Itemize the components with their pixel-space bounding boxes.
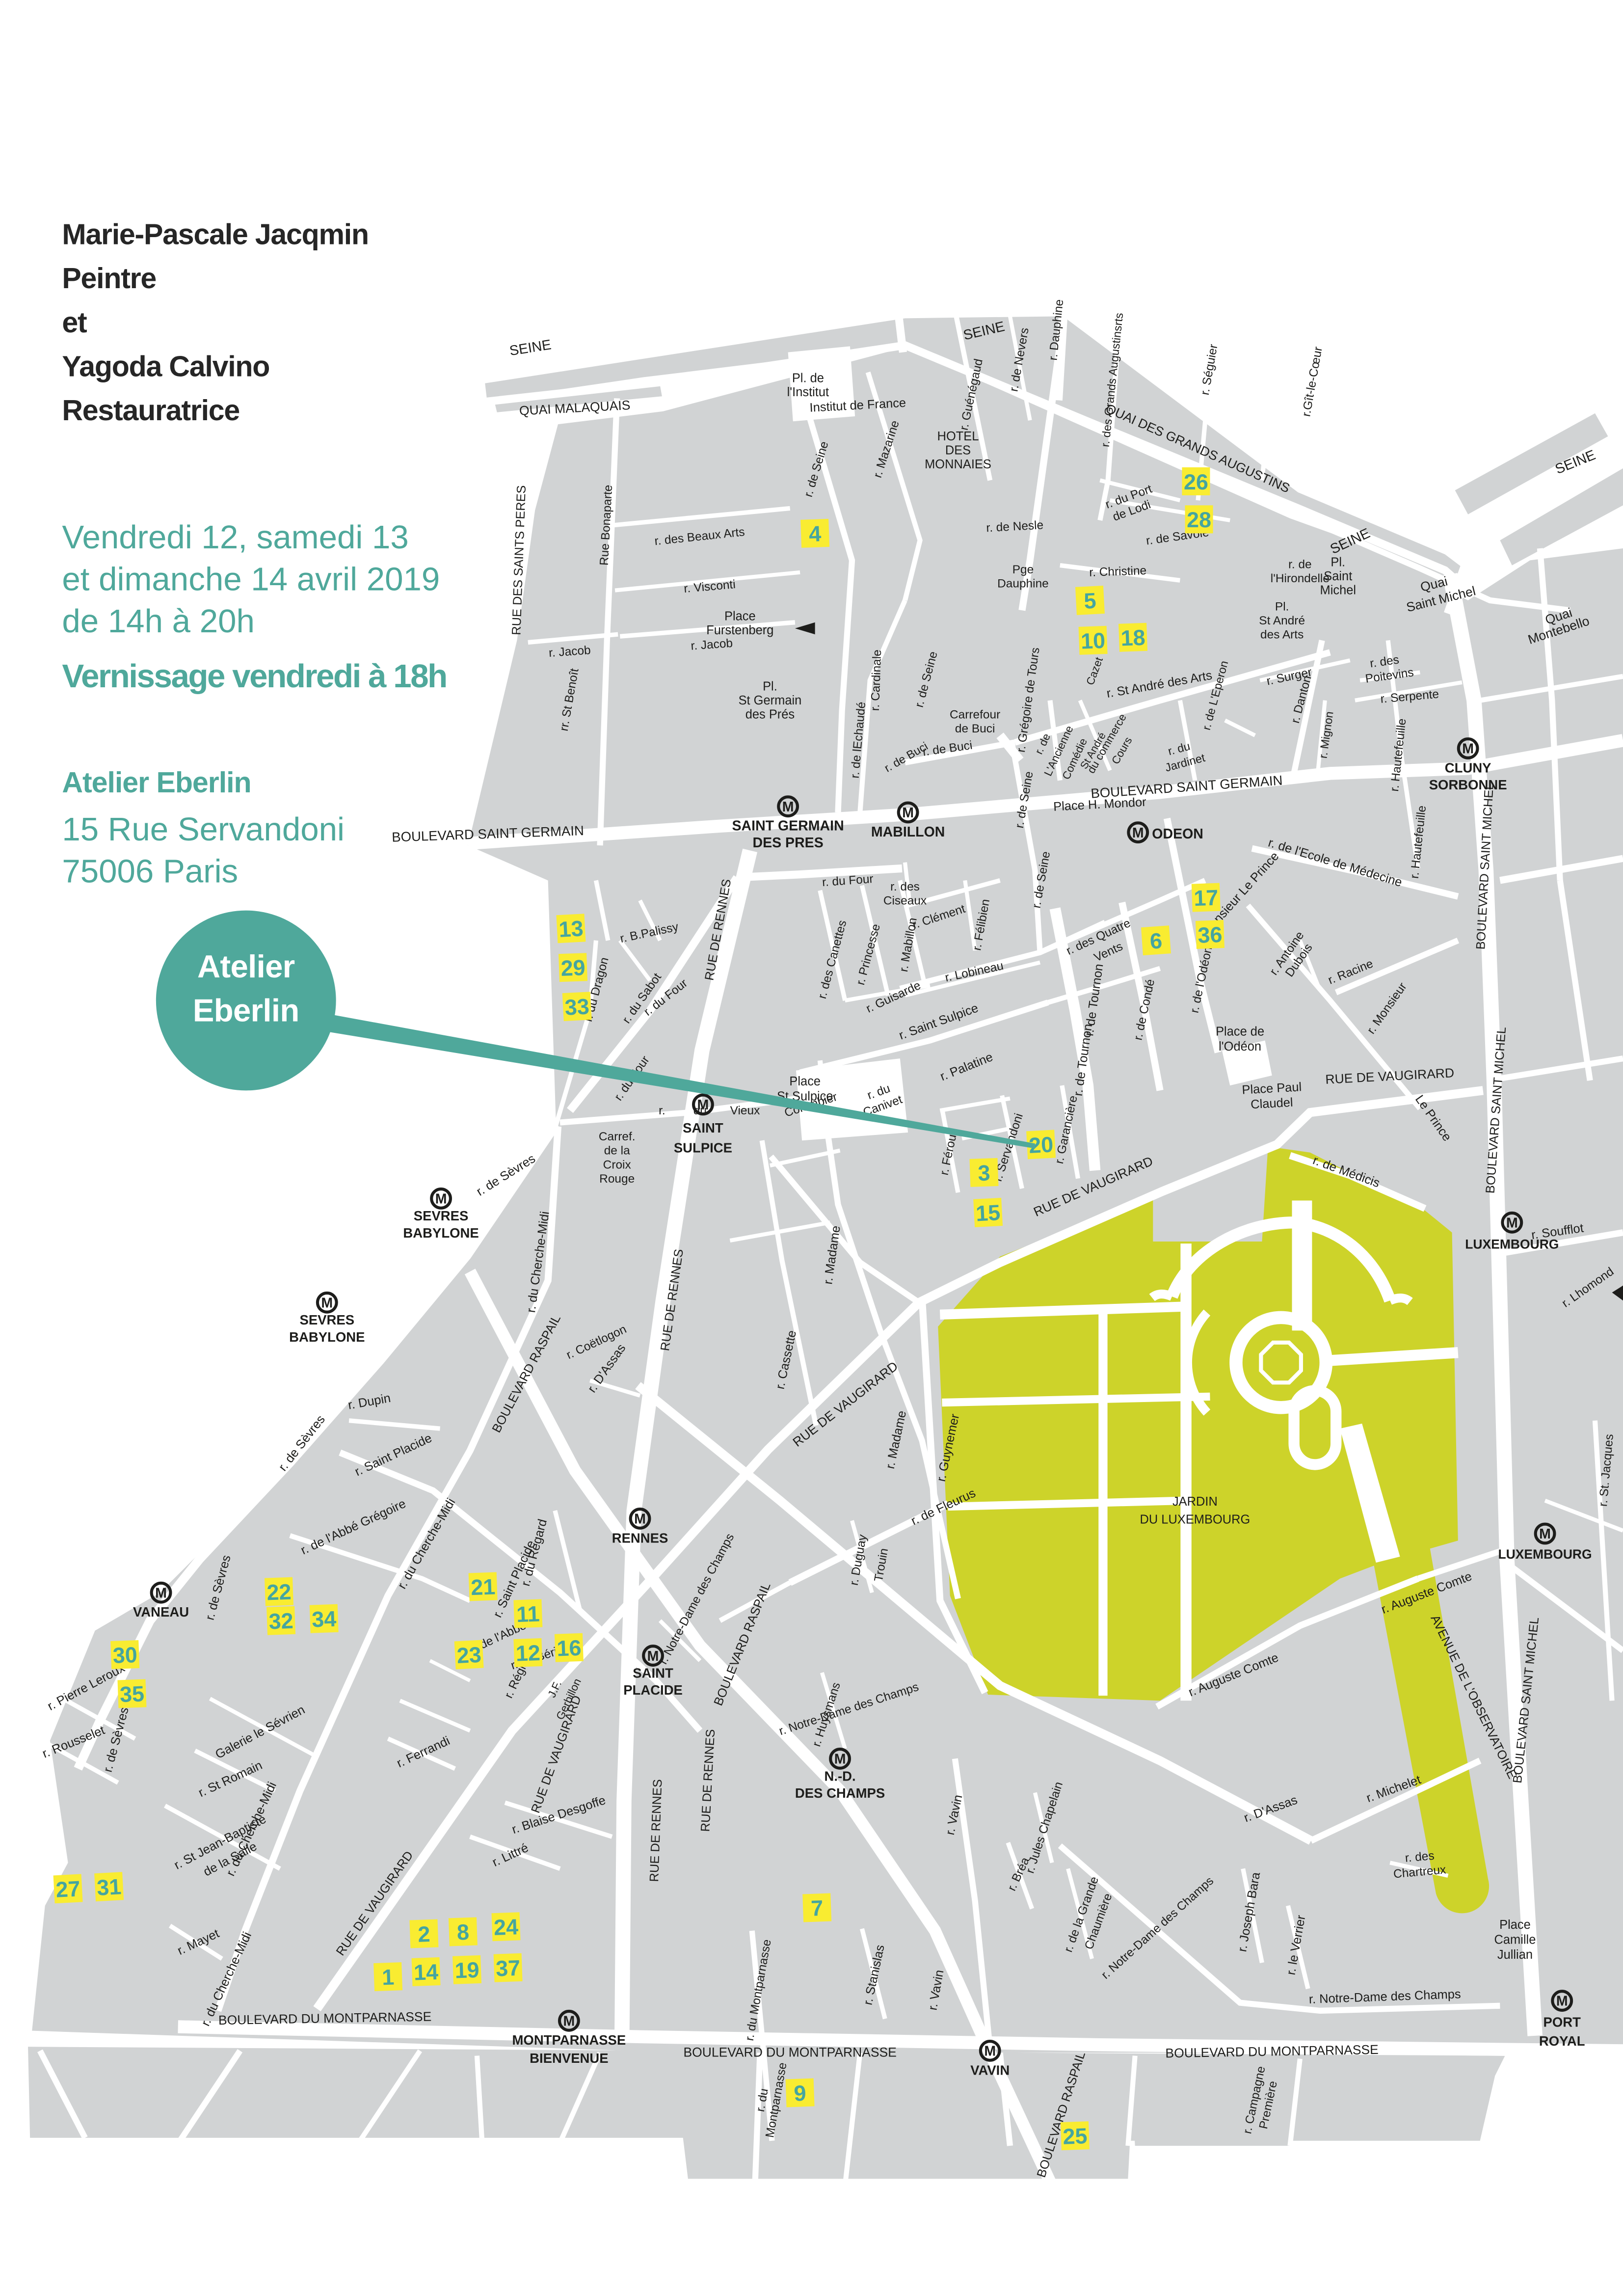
svg-text:Jullian: Jullian [1497, 1948, 1533, 1962]
svg-text:Ciseaux: Ciseaux [883, 894, 927, 907]
svg-text:Vernissage vendredi à 18h: Vernissage vendredi à 18h [62, 658, 446, 695]
svg-text:Marie-Pascale Jacqmin: Marie-Pascale Jacqmin [62, 218, 369, 251]
svg-text:des Arts: des Arts [1260, 628, 1304, 641]
svg-text:DES CHAMPS: DES CHAMPS [795, 1785, 885, 1801]
svg-text:ODEON: ODEON [1152, 826, 1203, 842]
svg-text:Place: Place [1499, 1918, 1531, 1932]
svg-text:Vieux: Vieux [730, 1104, 760, 1117]
svg-text:DU LUXEMBOURG: DU LUXEMBOURG [1140, 1513, 1250, 1527]
svg-text:30: 30 [112, 1643, 138, 1668]
svg-text:M: M [634, 1512, 646, 1527]
svg-text:PORT: PORT [1543, 2015, 1581, 2030]
svg-text:de 14h à 20h: de 14h à 20h [62, 603, 255, 640]
svg-text:CLUNY: CLUNY [1445, 760, 1491, 775]
svg-text:r.Gît-le-Cœur: r.Gît-le-Cœur [1300, 346, 1325, 417]
svg-text:M: M [563, 2013, 575, 2029]
svg-text:21: 21 [470, 1574, 496, 1600]
svg-text:13: 13 [558, 916, 584, 942]
svg-text:M: M [834, 1752, 846, 1767]
svg-text:r.: r. [659, 1104, 665, 1117]
svg-text:de la: de la [604, 1144, 630, 1158]
svg-text:M: M [155, 1585, 167, 1601]
svg-text:26: 26 [1184, 470, 1208, 494]
svg-text:r. de: r. de [1288, 558, 1312, 571]
svg-text:25: 25 [1063, 2124, 1088, 2149]
svg-text:Camille: Camille [1494, 1933, 1536, 1946]
svg-text:Peintre: Peintre [62, 262, 156, 295]
svg-text:4: 4 [808, 521, 822, 546]
svg-text:l'Institut: l'Institut [787, 385, 829, 399]
svg-text:r. Cardinale: r. Cardinale [869, 649, 884, 711]
svg-text:31: 31 [96, 1874, 122, 1900]
svg-text:15: 15 [975, 1200, 1001, 1226]
svg-text:32: 32 [268, 1609, 294, 1634]
svg-text:Atelier Eberlin: Atelier Eberlin [62, 766, 251, 799]
svg-text:Pl. de: Pl. de [792, 372, 824, 385]
svg-text:Croix: Croix [603, 1158, 631, 1171]
svg-text:Pge: Pge [1012, 563, 1034, 576]
svg-text:PLACIDE: PLACIDE [623, 1682, 683, 1698]
svg-text:SAINT GERMAIN: SAINT GERMAIN [732, 818, 844, 834]
svg-text:6: 6 [1149, 928, 1163, 954]
svg-text:SULPICE: SULPICE [674, 1140, 732, 1156]
svg-text:2: 2 [418, 1922, 431, 1947]
svg-text:34: 34 [311, 1607, 337, 1632]
svg-text:des Prés: des Prés [745, 707, 795, 721]
svg-text:LUXEMBOURG: LUXEMBOURG [1498, 1547, 1592, 1562]
svg-text:Place de: Place de [1216, 1025, 1264, 1038]
svg-text:VANEAU: VANEAU [133, 1604, 189, 1620]
svg-text:HOTEL: HOTEL [937, 430, 979, 443]
svg-text:M: M [1556, 1994, 1568, 2009]
svg-text:N.-D.: N.-D. [824, 1768, 855, 1783]
svg-text:27: 27 [55, 1876, 80, 1902]
svg-text:et dimanche 14 avril 2019: et dimanche 14 avril 2019 [62, 561, 440, 598]
svg-text:SAINT: SAINT [633, 1665, 673, 1680]
svg-text:11: 11 [516, 1601, 540, 1627]
svg-text:DES PRES: DES PRES [753, 835, 824, 851]
svg-text:BIENVENUE: BIENVENUE [530, 2051, 608, 2066]
svg-text:35: 35 [119, 1681, 145, 1707]
svg-text:Pl.: Pl. [1330, 556, 1345, 569]
svg-text:Pl.: Pl. [763, 679, 777, 693]
svg-text:M: M [1539, 1526, 1551, 1542]
svg-text:et: et [62, 306, 87, 339]
svg-text:9: 9 [794, 2081, 807, 2106]
svg-text:29: 29 [560, 955, 586, 981]
svg-text:M: M [1506, 1215, 1518, 1231]
svg-text:Dauphine: Dauphine [997, 577, 1049, 590]
svg-text:SEINE: SEINE [508, 337, 553, 359]
svg-text:33: 33 [564, 994, 590, 1020]
svg-text:Restauratrice: Restauratrice [62, 394, 239, 427]
svg-text:M: M [902, 805, 914, 821]
svg-text:18: 18 [1120, 625, 1146, 651]
svg-text:14: 14 [413, 1960, 439, 1985]
svg-text:r. Christine: r. Christine [1089, 564, 1147, 579]
svg-text:DES: DES [945, 443, 971, 457]
svg-text:MABILLON: MABILLON [871, 824, 945, 840]
svg-text:Claudel: Claudel [1251, 1096, 1294, 1111]
svg-text:Carref.: Carref. [599, 1130, 636, 1143]
svg-text:23: 23 [456, 1643, 481, 1669]
svg-text:17: 17 [1194, 886, 1219, 911]
svg-text:MONTPARNASSE: MONTPARNASSE [512, 2032, 626, 2048]
svg-text:28: 28 [1187, 508, 1211, 532]
svg-text:10: 10 [1080, 628, 1106, 654]
svg-text:Place: Place [724, 610, 756, 623]
svg-text:BABYLONE: BABYLONE [403, 1225, 479, 1241]
svg-text:M: M [435, 1191, 447, 1207]
svg-text:Pl.: Pl. [1275, 600, 1289, 613]
svg-text:l'Odéon: l'Odéon [1219, 1040, 1261, 1053]
svg-text:Rouge: Rouge [599, 1172, 635, 1186]
svg-text:1: 1 [381, 1965, 395, 1990]
svg-text:12: 12 [515, 1641, 541, 1666]
svg-text:Michel: Michel [1320, 584, 1357, 597]
svg-text:Carrefour: Carrefour [950, 708, 1000, 721]
svg-text:SAINT: SAINT [683, 1120, 723, 1135]
svg-text:M: M [1132, 825, 1144, 841]
svg-text:M: M [1462, 741, 1474, 757]
svg-text:Yagoda Calvino: Yagoda Calvino [62, 351, 269, 383]
svg-text:M: M [782, 799, 794, 815]
svg-text:Place: Place [789, 1075, 821, 1088]
svg-text:ROYAL: ROYAL [1539, 2033, 1585, 2049]
svg-text:JARDIN: JARDIN [1172, 1495, 1218, 1509]
svg-text:37: 37 [495, 1956, 521, 1981]
svg-text:St Germain: St Germain [739, 694, 802, 707]
svg-text:St André: St André [1259, 614, 1305, 627]
svg-text:7: 7 [810, 1896, 824, 1921]
svg-text:24: 24 [493, 1915, 519, 1940]
svg-text:Atelier: Atelier [197, 948, 295, 984]
svg-text:SEVRES: SEVRES [300, 1312, 355, 1327]
svg-text:VAVIN: VAVIN [970, 2062, 1010, 2078]
svg-text:8: 8 [456, 1920, 470, 1945]
svg-text:75006 Paris: 75006 Paris [62, 853, 238, 890]
svg-text:Furstenberg: Furstenberg [706, 623, 773, 637]
svg-text:l'Hirondelle: l'Hirondelle [1271, 572, 1330, 585]
svg-text:15 Rue Servandoni: 15 Rue Servandoni [62, 811, 345, 848]
svg-text:r. Séguier: r. Séguier [1198, 343, 1221, 396]
svg-text:16: 16 [557, 1636, 582, 1661]
svg-text:22: 22 [266, 1580, 292, 1605]
svg-text:M: M [321, 1295, 333, 1311]
svg-text:r. des: r. des [890, 880, 920, 893]
svg-text:SEVRES: SEVRES [414, 1208, 469, 1223]
svg-text:Eberlin: Eberlin [193, 993, 299, 1028]
svg-text:r. des: r. des [1405, 1849, 1435, 1865]
svg-text:M: M [647, 1648, 659, 1664]
svg-text:de Buci: de Buci [955, 722, 995, 735]
svg-text:MONNAIES: MONNAIES [925, 458, 991, 471]
svg-text:BABYLONE: BABYLONE [289, 1329, 365, 1345]
svg-text:19: 19 [454, 1958, 480, 1983]
svg-text:36: 36 [1197, 922, 1223, 948]
svg-text:Vendredi 12, samedi 13: Vendredi 12, samedi 13 [62, 519, 408, 556]
svg-text:RENNES: RENNES [612, 1530, 668, 1545]
svg-text:M: M [697, 1097, 709, 1113]
svg-text:M: M [984, 2044, 996, 2059]
svg-text:BOULEVARD DU MONTPARNASSE: BOULEVARD DU MONTPARNASSE [684, 2045, 897, 2060]
svg-text:3: 3 [978, 1161, 991, 1186]
svg-text:5: 5 [1083, 589, 1097, 614]
